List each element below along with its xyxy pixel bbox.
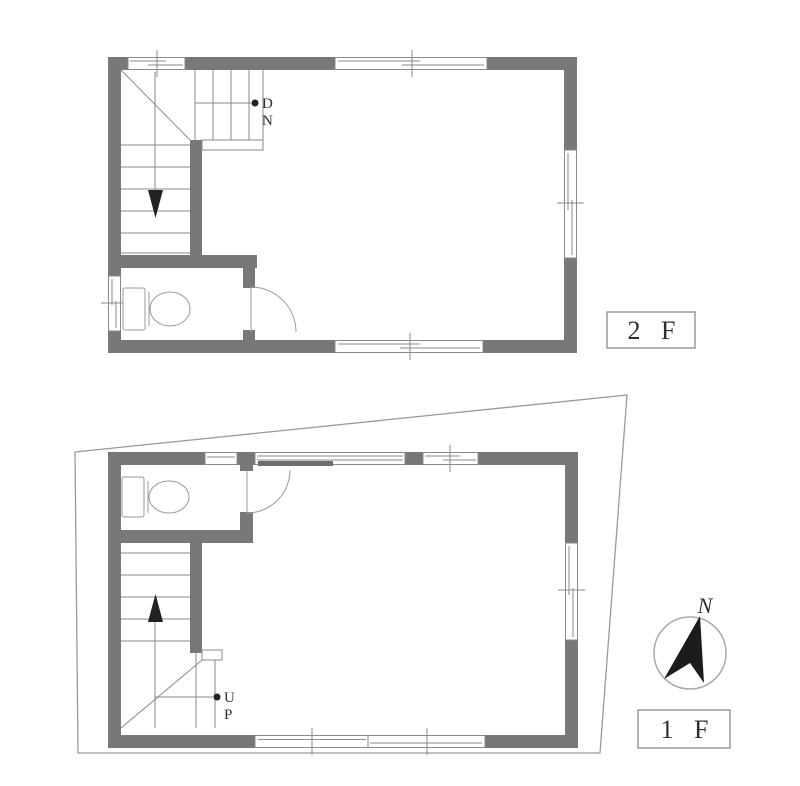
dn-label-line2: N: [262, 113, 273, 129]
window-right-2f: [557, 150, 584, 258]
compass-north-label: N: [697, 593, 714, 618]
window-bottom-2f: [335, 333, 483, 360]
staircase-1f: U P: [121, 553, 235, 728]
toilet-fixture-1f: [122, 477, 189, 517]
stair-marker-up: U P: [155, 690, 235, 723]
toilet-door-pier-bottom-2f: [243, 330, 255, 342]
floor-plan-canvas: D N: [0, 0, 800, 786]
toilet-fixture-2f: [123, 288, 190, 330]
window-top-right-2f: [335, 50, 487, 77]
toilet-door-pier-top-2f: [243, 255, 255, 288]
dn-label-line1: D: [262, 96, 273, 112]
toilet-top-wall-2f: [108, 255, 257, 268]
window-toilet-top-1f: [205, 453, 237, 465]
door-swing-1f: [247, 470, 290, 513]
floor-label-text-1f: 1 F: [661, 715, 716, 744]
compass: N: [654, 593, 726, 689]
floor-plan-1f: U P: [108, 445, 585, 755]
toilet-door-pier-bottom-1f: [240, 512, 253, 532]
toilet-door-pier-top-1f: [240, 463, 253, 471]
entrance-door-panel: [258, 461, 333, 466]
dn-marker-dot: [252, 100, 259, 107]
windows-1f: [255, 543, 585, 755]
window-top-right-1f: [423, 445, 478, 472]
toilet-bottom-wall-1f: [108, 530, 253, 543]
window-top-left-2f: [128, 50, 185, 77]
entrance-sliding-door-1f: [255, 453, 405, 467]
floor-plan-page: D N: [0, 0, 800, 786]
stair-landing-edge-2f: [202, 140, 263, 150]
floor-plan-2f: D N: [101, 50, 584, 360]
door-swing-2f: [251, 287, 296, 332]
up-label-line1: U: [224, 690, 235, 706]
stair-wall-2f: [190, 140, 202, 259]
up-label-line2: P: [224, 707, 232, 723]
stair-landing-edge-1f: [202, 650, 222, 660]
stair-marker-dn: D N: [195, 96, 273, 129]
wall-left-1f: [108, 452, 121, 748]
up-marker-dot: [214, 694, 221, 701]
stair-wall-1f: [190, 543, 202, 653]
floor-label-2f: 2 F: [607, 312, 695, 348]
stair-direction-arrow-up: [148, 594, 163, 728]
window-bottom-1f: [255, 728, 485, 755]
north-arrow-icon: [664, 616, 704, 683]
toilet-room-2f: [123, 287, 296, 332]
site-boundary-line: [75, 395, 627, 753]
floor-label-text-2f: 2 F: [628, 316, 683, 345]
toilet-room-1f: [122, 470, 290, 517]
floor-label-1f: 1 F: [638, 710, 730, 748]
window-right-1f: [558, 543, 585, 640]
